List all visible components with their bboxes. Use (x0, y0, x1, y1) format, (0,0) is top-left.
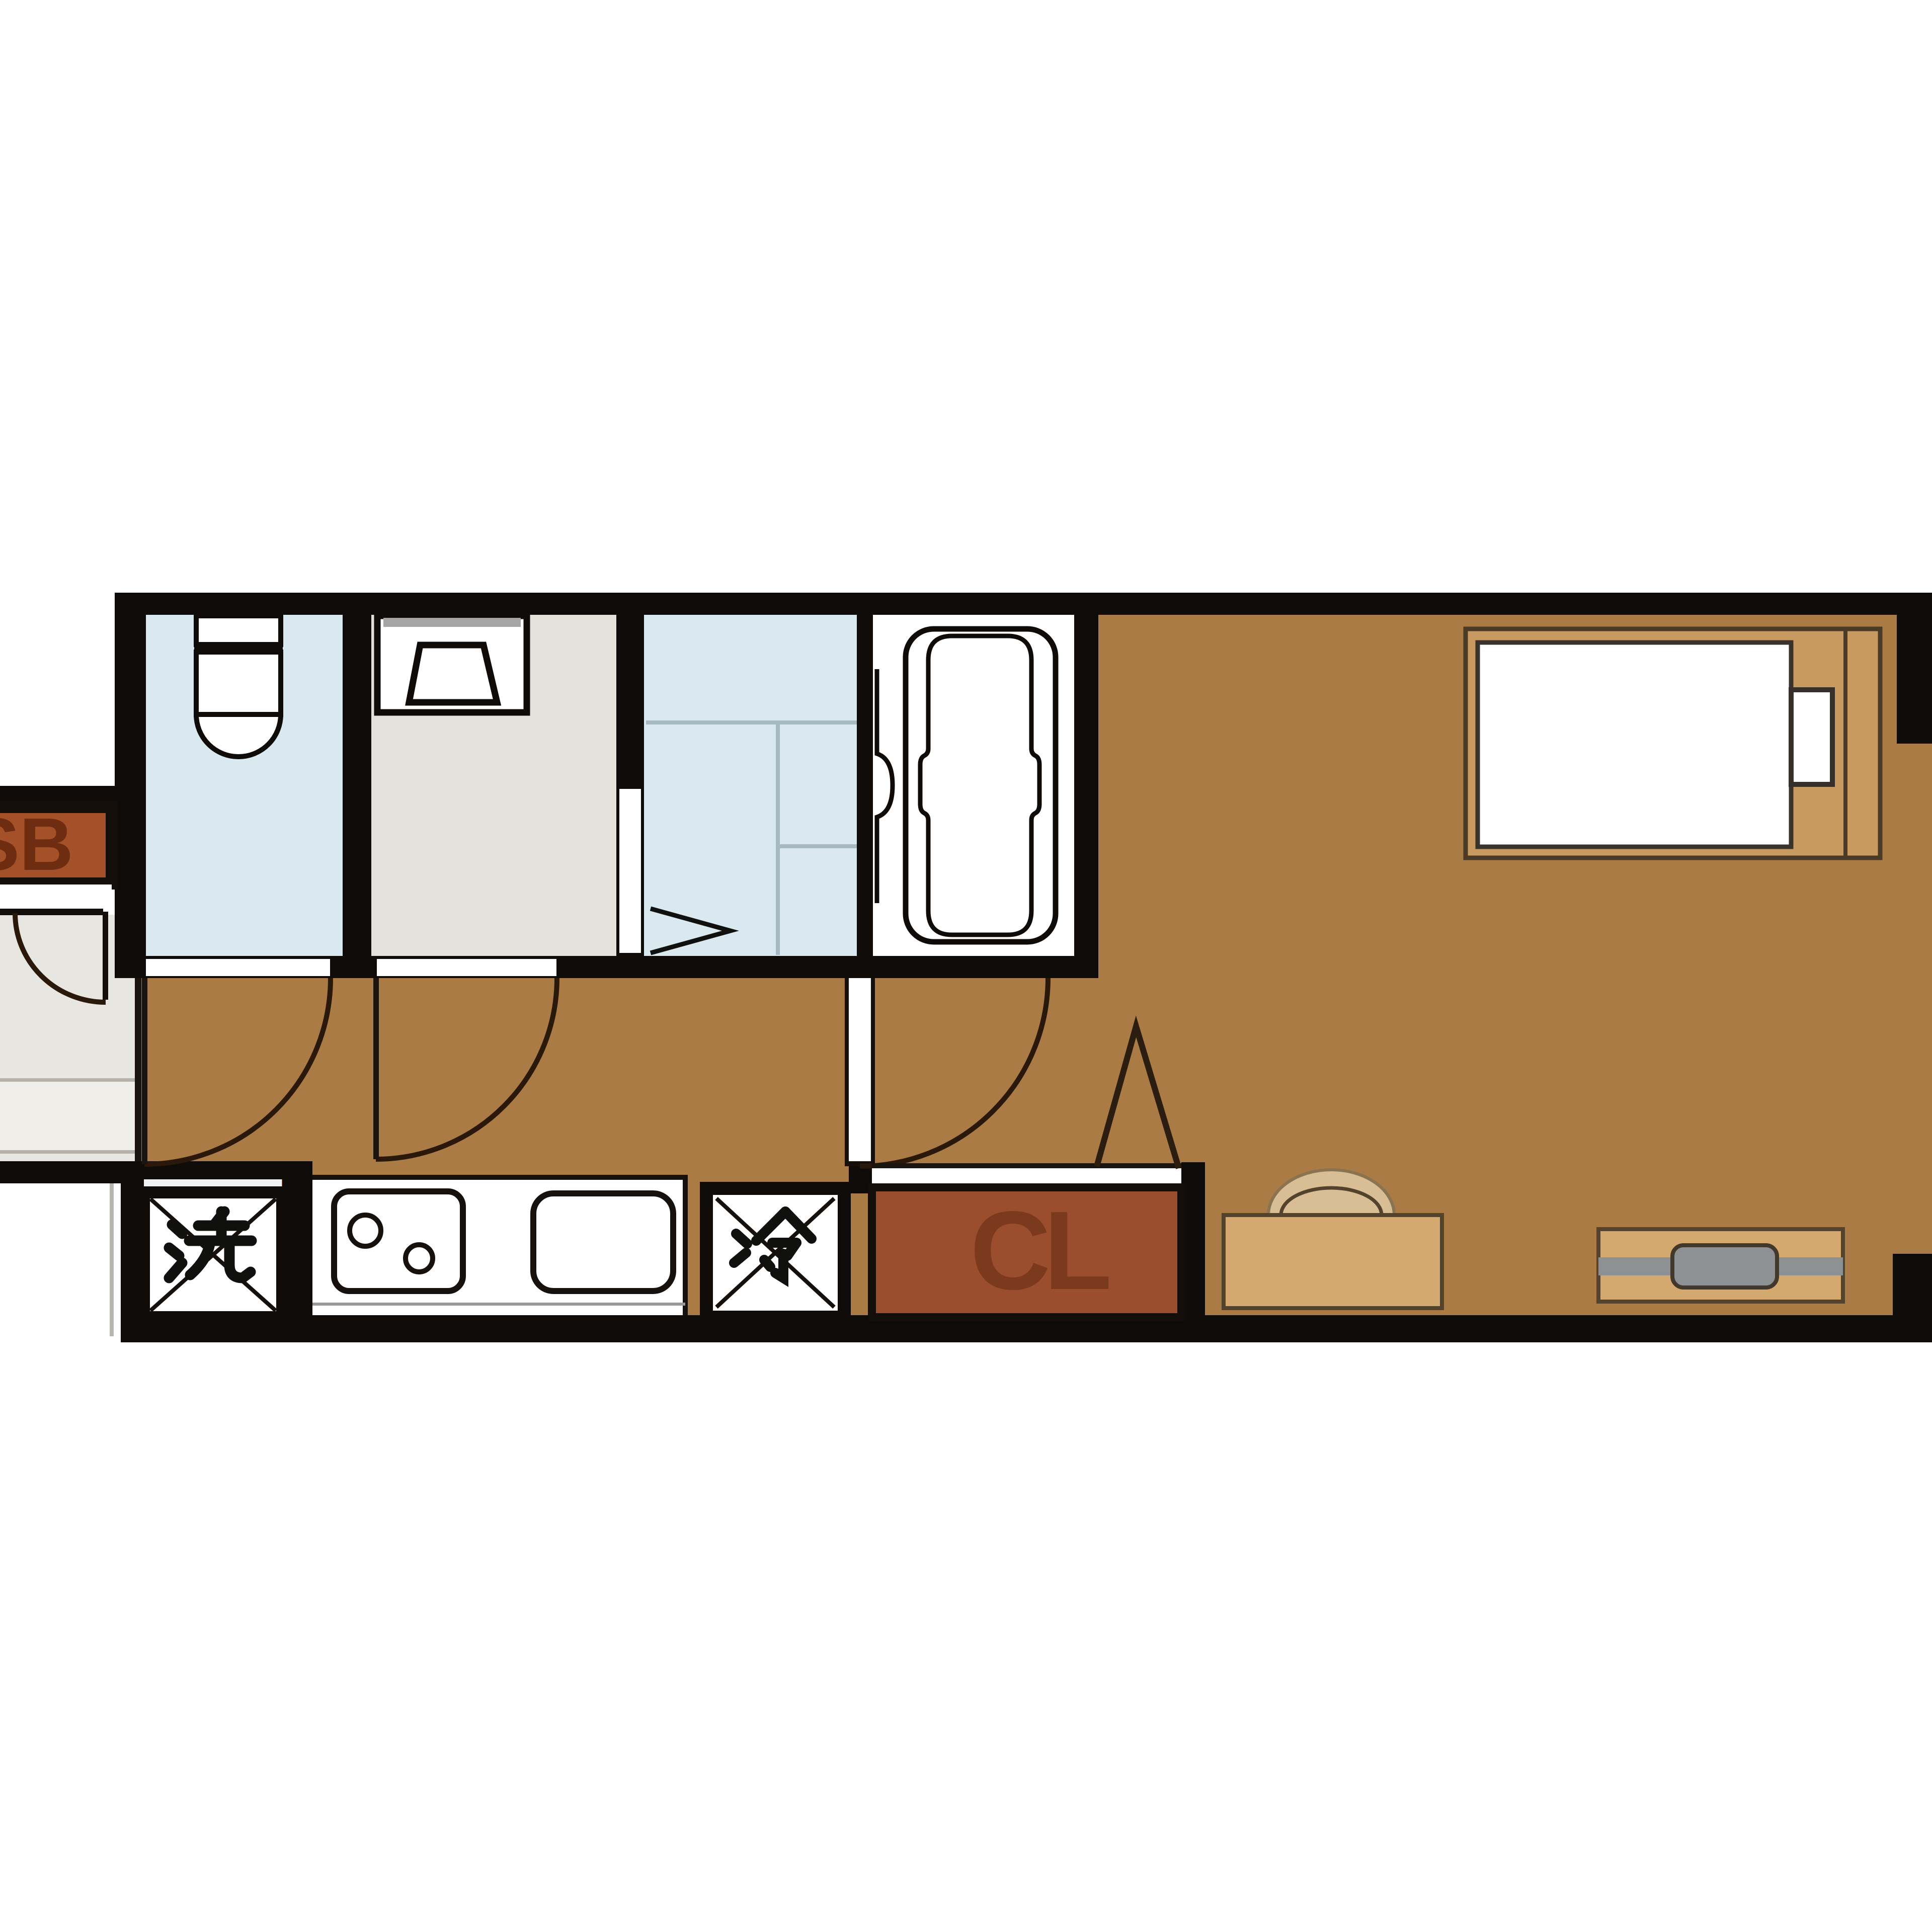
svg-text:SB: SB (0, 803, 73, 886)
svg-text:CL: CL (970, 1188, 1108, 1313)
